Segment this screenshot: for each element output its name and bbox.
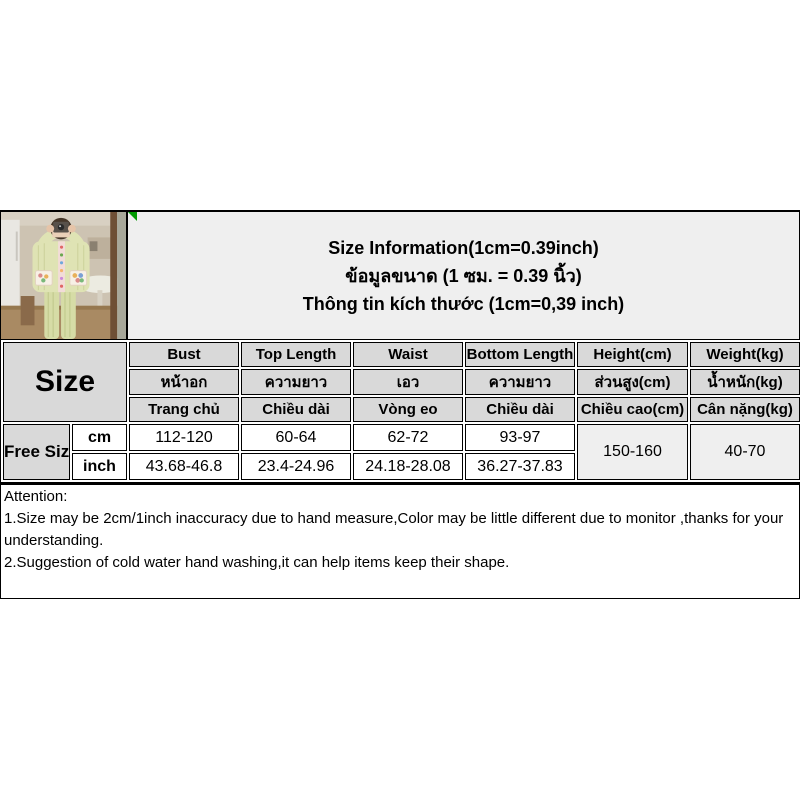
header-top-length-th: ความยาว <box>241 369 351 395</box>
header-bottom-length-vi: Chiều dài <box>465 397 575 422</box>
title-vietnamese: Thông tin kích thước (1cm=0,39 inch) <box>303 292 624 316</box>
waist-cm: 62-72 <box>353 424 463 451</box>
header-height-vi: Chiều cao(cm) <box>577 397 688 422</box>
bottom-length-inch: 36.27-37.83 <box>465 453 575 480</box>
size-table-wrap: Size Bust Top Length Waist Bottom Length… <box>1 340 799 485</box>
header-weight: Weight(kg) <box>690 342 800 367</box>
header-bust-vi: Trang chủ <box>129 397 239 422</box>
free-size-label: Free Size <box>3 424 70 480</box>
header-waist-vi: Vòng eo <box>353 397 463 422</box>
sheet-frame: Size Information(1cm=0.39inch) ข้อมูลขนา… <box>0 210 800 599</box>
header-row-english: Size Bust Top Length Waist Bottom Length… <box>3 342 800 367</box>
bust-inch: 43.68-46.8 <box>129 453 239 480</box>
title-thai: ข้อมูลขนาด (1 ซม. = 0.39 นิ้ว) <box>345 264 581 288</box>
header-weight-th: น้ำหนัก(kg) <box>690 369 800 395</box>
header-height-th: ส่วนสูง(cm) <box>577 369 688 395</box>
attention-note-2: 2.Suggestion of cold water hand washing,… <box>4 552 796 574</box>
attention-section: Attention: 1.Size may be 2cm/1inch inacc… <box>1 485 799 598</box>
header-bust-th: หน้าอก <box>129 369 239 395</box>
size-header-cell: Size <box>3 342 127 422</box>
data-row-cm: Free Size cm 112-120 60-64 62-72 93-97 1… <box>3 424 800 451</box>
top-length-inch: 23.4-24.96 <box>241 453 351 480</box>
header-bust: Bust <box>129 342 239 367</box>
header-waist-th: เอว <box>353 369 463 395</box>
header-height: Height(cm) <box>577 342 688 367</box>
unit-cm: cm <box>72 424 127 451</box>
header-top-length: Top Length <box>241 342 351 367</box>
size-information-title-panel: Size Information(1cm=0.39inch) ข้อมูลขนา… <box>128 212 799 339</box>
size-chart-sheet: Size Information(1cm=0.39inch) ข้อมูลขนา… <box>0 0 800 800</box>
bust-cm: 112-120 <box>129 424 239 451</box>
header-block: Size Information(1cm=0.39inch) ข้อมูลขนา… <box>1 210 799 340</box>
unit-inch: inch <box>72 453 127 480</box>
waist-inch: 24.18-28.08 <box>353 453 463 480</box>
title-english: Size Information(1cm=0.39inch) <box>328 236 599 260</box>
header-bottom-length-th: ความยาว <box>465 369 575 395</box>
header-bottom-length: Bottom Length <box>465 342 575 367</box>
header-weight-vi: Cân nặng(kg) <box>690 397 800 422</box>
attention-note-1: 1.Size may be 2cm/1inch inaccuracy due t… <box>4 508 796 552</box>
header-waist: Waist <box>353 342 463 367</box>
header-top-length-vi: Chiều dài <box>241 397 351 422</box>
product-photo <box>1 212 128 339</box>
size-table: Size Bust Top Length Waist Bottom Length… <box>1 340 800 482</box>
top-length-cm: 60-64 <box>241 424 351 451</box>
weight-value: 40-70 <box>690 424 800 480</box>
pajama-photo-illustration <box>1 212 126 339</box>
green-corner-marker-icon <box>128 212 137 221</box>
height-value: 150-160 <box>577 424 688 480</box>
bottom-length-cm: 93-97 <box>465 424 575 451</box>
attention-heading: Attention: <box>4 486 796 508</box>
